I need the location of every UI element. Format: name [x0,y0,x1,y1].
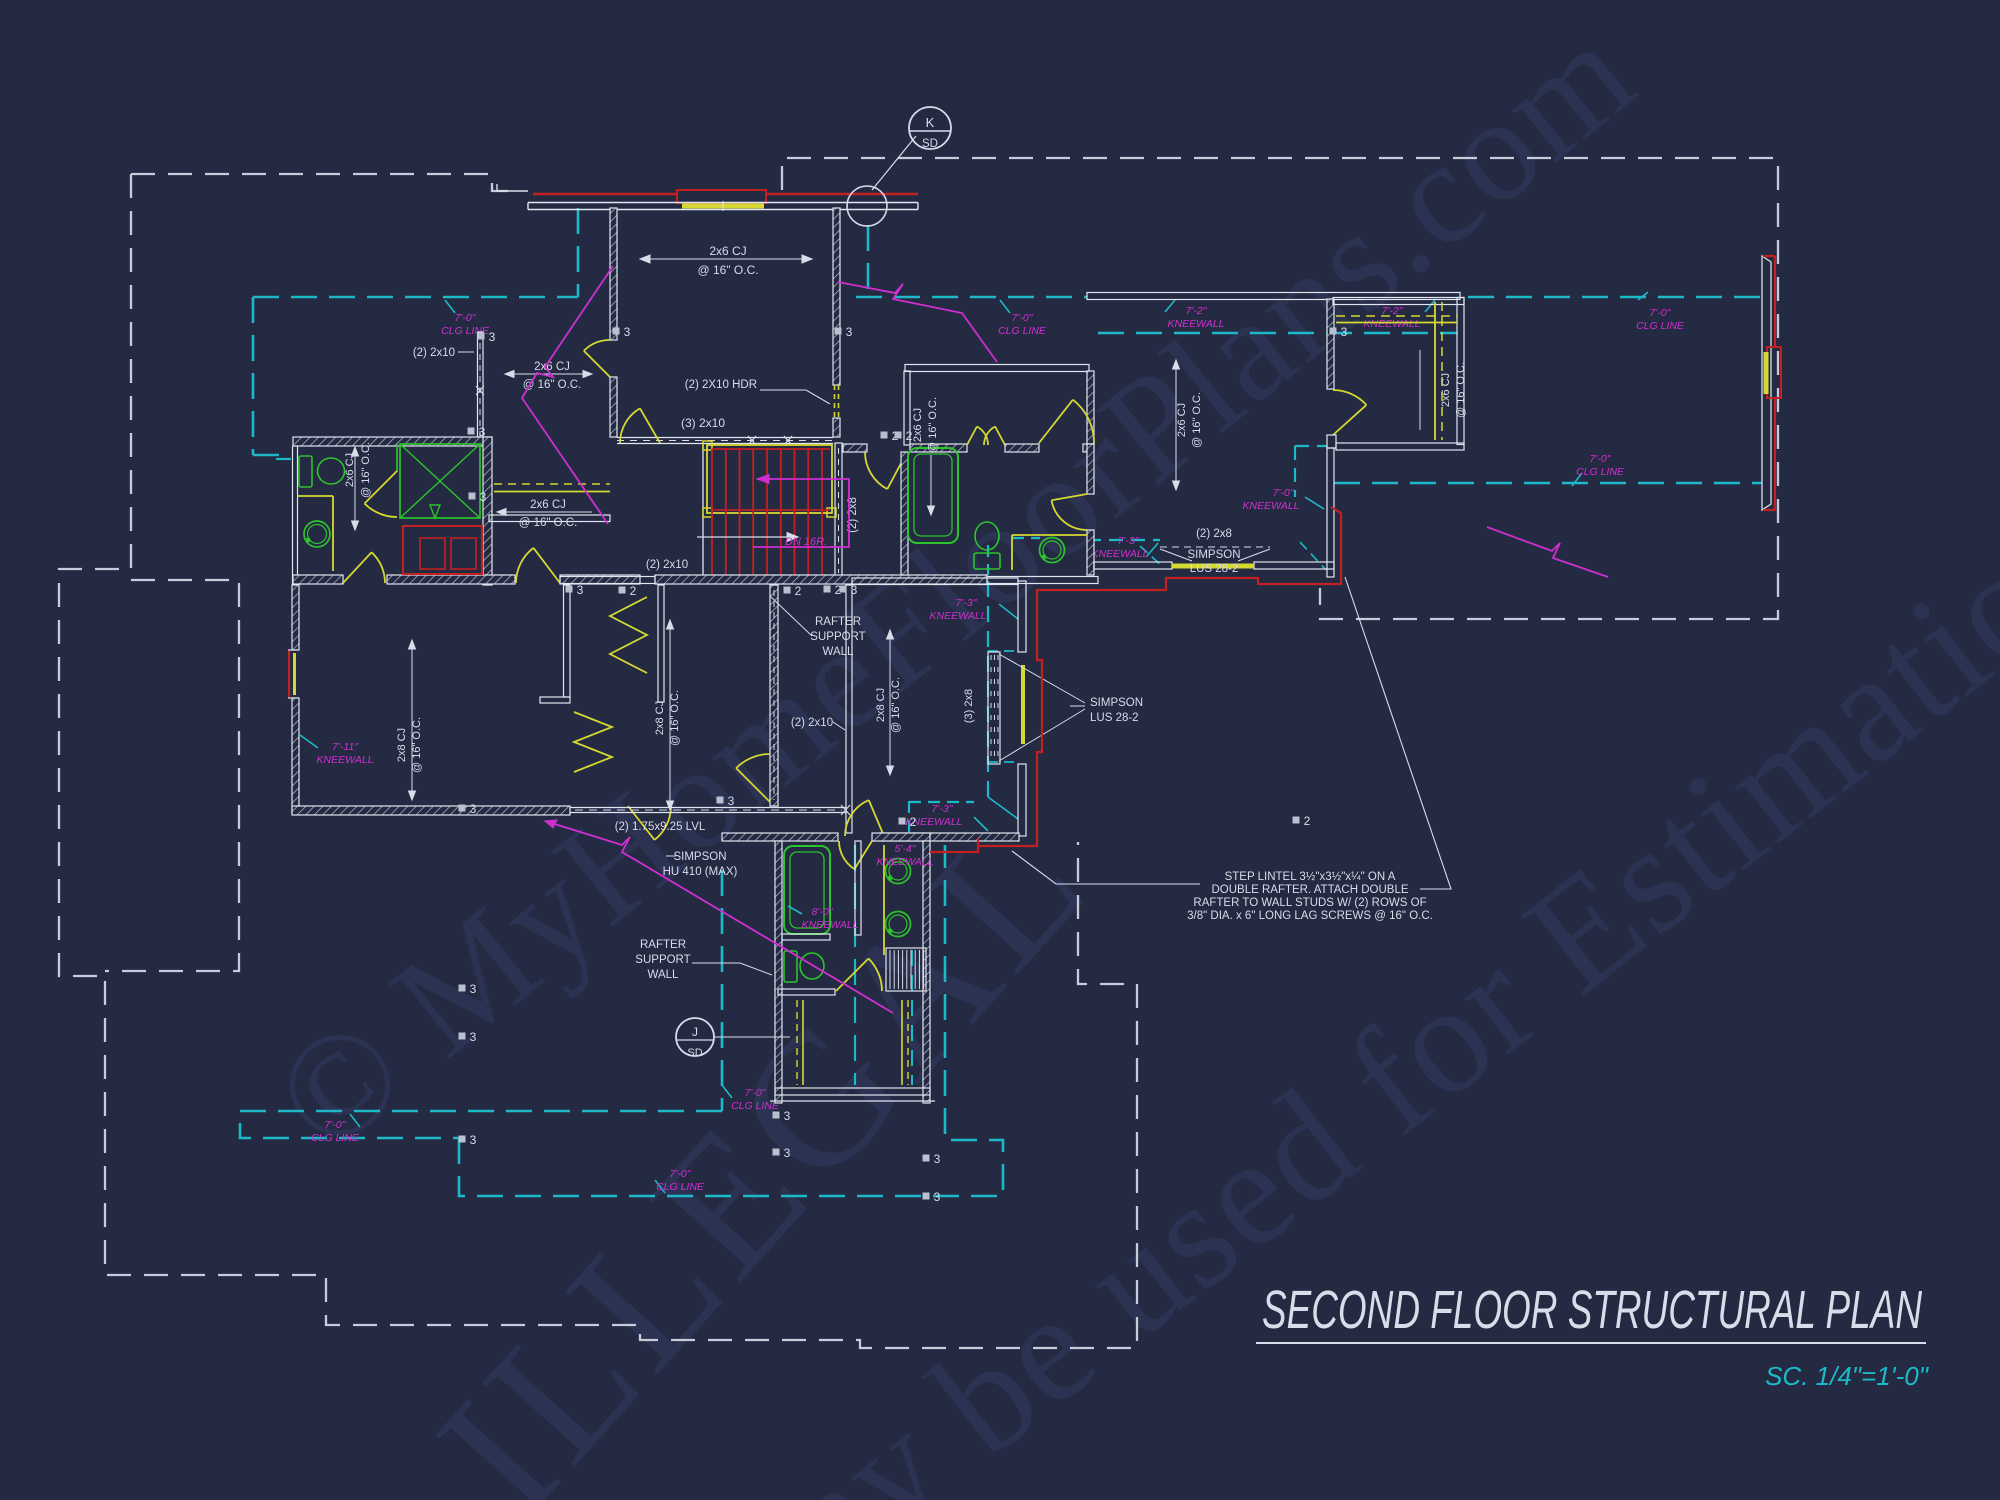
svg-text:(2) 2x10: (2) 2x10 [791,717,833,729]
svg-text:2x6 CJ: 2x6 CJ [1176,403,1188,437]
svg-text:2x6 CJ: 2x6 CJ [912,408,924,442]
svg-text:7'-0": 7'-0" [1012,312,1034,324]
svg-text:KNEEWALL: KNEEWALL [1243,500,1300,512]
svg-text:7'-0": 7'-0" [670,1168,692,1180]
svg-text:8'-0": 8'-0" [812,906,834,918]
svg-text:5'-4": 5'-4" [895,843,917,855]
svg-text:CLG LINE: CLG LINE [656,1181,705,1193]
svg-text:2x6 CJ: 2x6 CJ [1440,373,1452,407]
svg-text:CLG LINE: CLG LINE [998,325,1047,337]
svg-text:@ 16" O.C.: @ 16" O.C. [1191,392,1203,448]
svg-text:3: 3 [846,325,853,339]
svg-text:KNEEWALL: KNEEWALL [877,856,934,868]
svg-text:3: 3 [934,1190,941,1204]
svg-text:@ 16" O.C.: @ 16" O.C. [890,677,902,733]
svg-text:3: 3 [851,583,858,597]
svg-text:K: K [926,115,935,130]
svg-text:KNEEWALL: KNEEWALL [1092,548,1149,560]
svg-text:(2) 2x8: (2) 2x8 [1196,528,1232,540]
svg-text:3: 3 [784,1146,791,1160]
svg-text:SECOND FLOOR STRUCTURAL PLAN: SECOND FLOOR STRUCTURAL PLAN [1262,1280,1923,1340]
svg-text:2: 2 [795,584,802,598]
svg-text:3: 3 [577,583,584,597]
svg-text:3: 3 [479,425,486,439]
svg-text:3: 3 [934,1152,941,1166]
svg-text:KNEEWALL: KNEEWALL [802,919,859,931]
svg-text:KNEEWALL: KNEEWALL [317,754,374,766]
svg-text:(2) 2X10 HDR: (2) 2X10 HDR [685,379,757,391]
svg-text:3: 3 [784,1109,791,1123]
svg-text:7'-2": 7'-2" [1382,305,1404,317]
svg-text:2x8 CJ: 2x8 CJ [875,688,887,722]
svg-text:@ 16" O.C.: @ 16" O.C. [519,517,578,529]
svg-text:SIMPSON: SIMPSON [1090,697,1143,709]
svg-text:SUPPORT: SUPPORT [810,631,865,643]
svg-text:LUS 28-2: LUS 28-2 [1090,712,1139,724]
svg-text:CLG LINE: CLG LINE [1636,320,1685,332]
svg-text:2: 2 [630,584,637,598]
svg-text:SIMPSON: SIMPSON [673,851,726,863]
svg-text:3/8" DIA. x 6" LONG LAG SCREWS: 3/8" DIA. x 6" LONG LAG SCREWS @ 16" O.C… [1187,910,1433,922]
svg-text:2: 2 [910,815,917,829]
svg-text:2x8 CJ: 2x8 CJ [654,701,666,735]
svg-text:7'-3": 7'-3" [932,803,954,815]
svg-text:@ 16" O.C.: @ 16" O.C. [697,263,758,277]
svg-text:@ 16" O.C.: @ 16" O.C. [1455,362,1467,418]
svg-text:J: J [692,1025,698,1039]
svg-text:SIMPSON: SIMPSON [1187,549,1240,561]
svg-text:KNEEWALL: KNEEWALL [1168,318,1225,330]
svg-text:SD: SD [922,138,938,150]
svg-text:2: 2 [1304,814,1311,828]
svg-text:3: 3 [470,802,477,816]
svg-text:2x6 CJ: 2x6 CJ [534,361,570,373]
svg-text:LUS 28-2: LUS 28-2 [1190,563,1239,575]
svg-text:2x6 CJ: 2x6 CJ [709,244,746,258]
svg-text:CLG LINE: CLG LINE [1576,466,1625,478]
svg-text:7'-0": 7'-0" [1650,307,1672,319]
svg-text:(3) 2x8: (3) 2x8 [963,689,975,723]
svg-text:3: 3 [624,325,631,339]
svg-text:RAFTER TO WALL STUDS W/ (2) RO: RAFTER TO WALL STUDS W/ (2) ROWS OF [1193,897,1426,909]
svg-text:7'-3": 7'-3" [1118,535,1140,547]
svg-text:7'-3": 7'-3" [956,597,978,609]
svg-text:7'-0": 7'-0" [745,1087,767,1099]
svg-text:SD: SD [687,1047,702,1059]
svg-text:@ 16" O.C.: @ 16" O.C. [360,442,372,498]
svg-text:7'-0": 7'-0" [1590,453,1612,465]
svg-text:3: 3 [489,330,496,344]
svg-text:7'-0": 7'-0" [455,312,477,324]
svg-text:3: 3 [1341,325,1348,339]
svg-text:KNEEWALL: KNEEWALL [930,610,987,622]
svg-text:3: 3 [470,1133,477,1147]
svg-text:WALL: WALL [648,969,679,981]
svg-text:7'-0": 7'-0" [325,1119,347,1131]
svg-text:2x6 CJ: 2x6 CJ [344,453,356,487]
svg-text:HU 410 (MAX): HU 410 (MAX) [663,866,738,878]
svg-text:3: 3 [470,982,477,996]
svg-text:@ 16" O.C.: @ 16" O.C. [669,690,681,746]
svg-text:@ 16" O.C.: @ 16" O.C. [927,397,939,453]
svg-text:2: 2 [906,429,913,443]
svg-text:STEP LINTEL 3½"x3½"x¼" ON A: STEP LINTEL 3½"x3½"x¼" ON A [1225,871,1396,883]
svg-text:DN 16R.: DN 16R. [785,536,827,548]
svg-text:@ 16" O.C.: @ 16" O.C. [411,717,423,773]
svg-text:SC. 1/4"=1'-0": SC. 1/4"=1'-0" [1765,1361,1930,1391]
svg-text:(2) 2x10: (2) 2x10 [413,347,455,359]
svg-text:RAFTER: RAFTER [815,616,861,628]
svg-text:2x6 CJ: 2x6 CJ [530,499,566,511]
svg-text:RAFTER: RAFTER [640,939,686,951]
svg-text:DOUBLE RAFTER. ATTACH DOUBLE: DOUBLE RAFTER. ATTACH DOUBLE [1211,884,1408,896]
svg-text:CLG LINE: CLG LINE [311,1132,360,1144]
svg-text:KNEEWALL: KNEEWALL [1364,318,1421,330]
svg-text:3: 3 [728,794,735,808]
svg-text:7'-2": 7'-2" [1186,305,1208,317]
svg-text:(3) 2x10: (3) 2x10 [681,416,725,430]
svg-text:WALL: WALL [823,646,854,658]
svg-text:SUPPORT: SUPPORT [635,954,690,966]
svg-text:7'-11": 7'-11" [332,741,359,753]
svg-text:3: 3 [470,1030,477,1044]
svg-text:3: 3 [480,490,487,504]
svg-text:2x8 CJ: 2x8 CJ [396,728,408,762]
svg-text:(2) 2x10: (2) 2x10 [646,559,688,571]
svg-text:7'-0": 7'-0" [1273,487,1295,499]
svg-text:(2) 1.75x9.25 LVL: (2) 1.75x9.25 LVL [615,821,706,833]
svg-text:CLG LINE: CLG LINE [731,1100,780,1112]
